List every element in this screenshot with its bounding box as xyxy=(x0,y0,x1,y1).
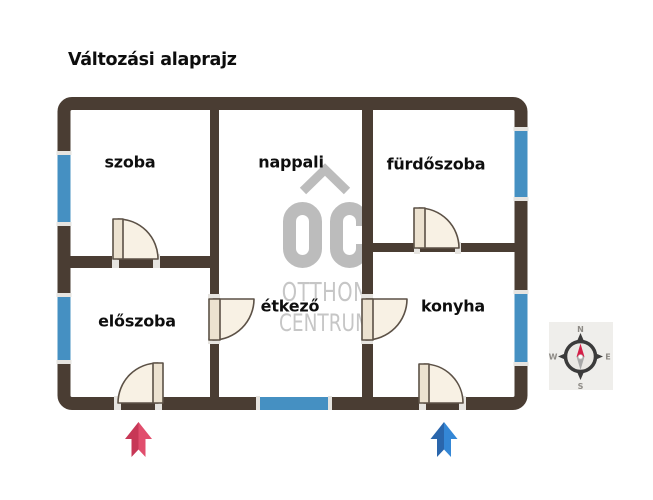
window-konyha xyxy=(515,294,528,362)
door-konyha-entrance xyxy=(424,364,463,403)
room-label-eloszoba: előszoba xyxy=(98,312,176,331)
room-label-nappali: nappali xyxy=(258,153,323,172)
entrance-arrow-blue-icon xyxy=(431,422,458,457)
page-title: Változási alaprajz xyxy=(68,50,237,70)
watermark-roof-icon xyxy=(303,170,347,192)
window-eloszoba xyxy=(58,297,71,360)
window-etkezo xyxy=(260,397,328,410)
window-szoba xyxy=(58,155,71,222)
floorplan-canvas: OTTHON CENTRUM xyxy=(0,0,653,500)
watermark-letter-o xyxy=(290,209,316,262)
room-label-konyha: konyha xyxy=(421,297,485,316)
watermark-letter-c xyxy=(337,209,363,262)
wall-szoba-nappali xyxy=(210,110,219,398)
entrance-arrow-red-icon xyxy=(125,422,152,457)
compass-label-s: S xyxy=(578,382,584,391)
compass-label-e: E xyxy=(605,353,610,362)
room-label-etkezo: étkező xyxy=(261,297,320,316)
room-label-furdoszoba: fürdőszoba xyxy=(387,155,486,174)
compass-label-n: N xyxy=(577,325,584,334)
compass-rose-icon: N E S W xyxy=(549,322,613,391)
floorplan-page: OTTHON CENTRUM xyxy=(0,0,653,500)
compass-label-w: W xyxy=(549,353,558,362)
door-eloszoba-entrance xyxy=(118,363,158,403)
room-label-szoba: szoba xyxy=(104,153,155,172)
wall-nappali-konyha xyxy=(362,110,373,398)
window-furdoszoba xyxy=(515,131,528,197)
door-szoba xyxy=(118,219,158,259)
